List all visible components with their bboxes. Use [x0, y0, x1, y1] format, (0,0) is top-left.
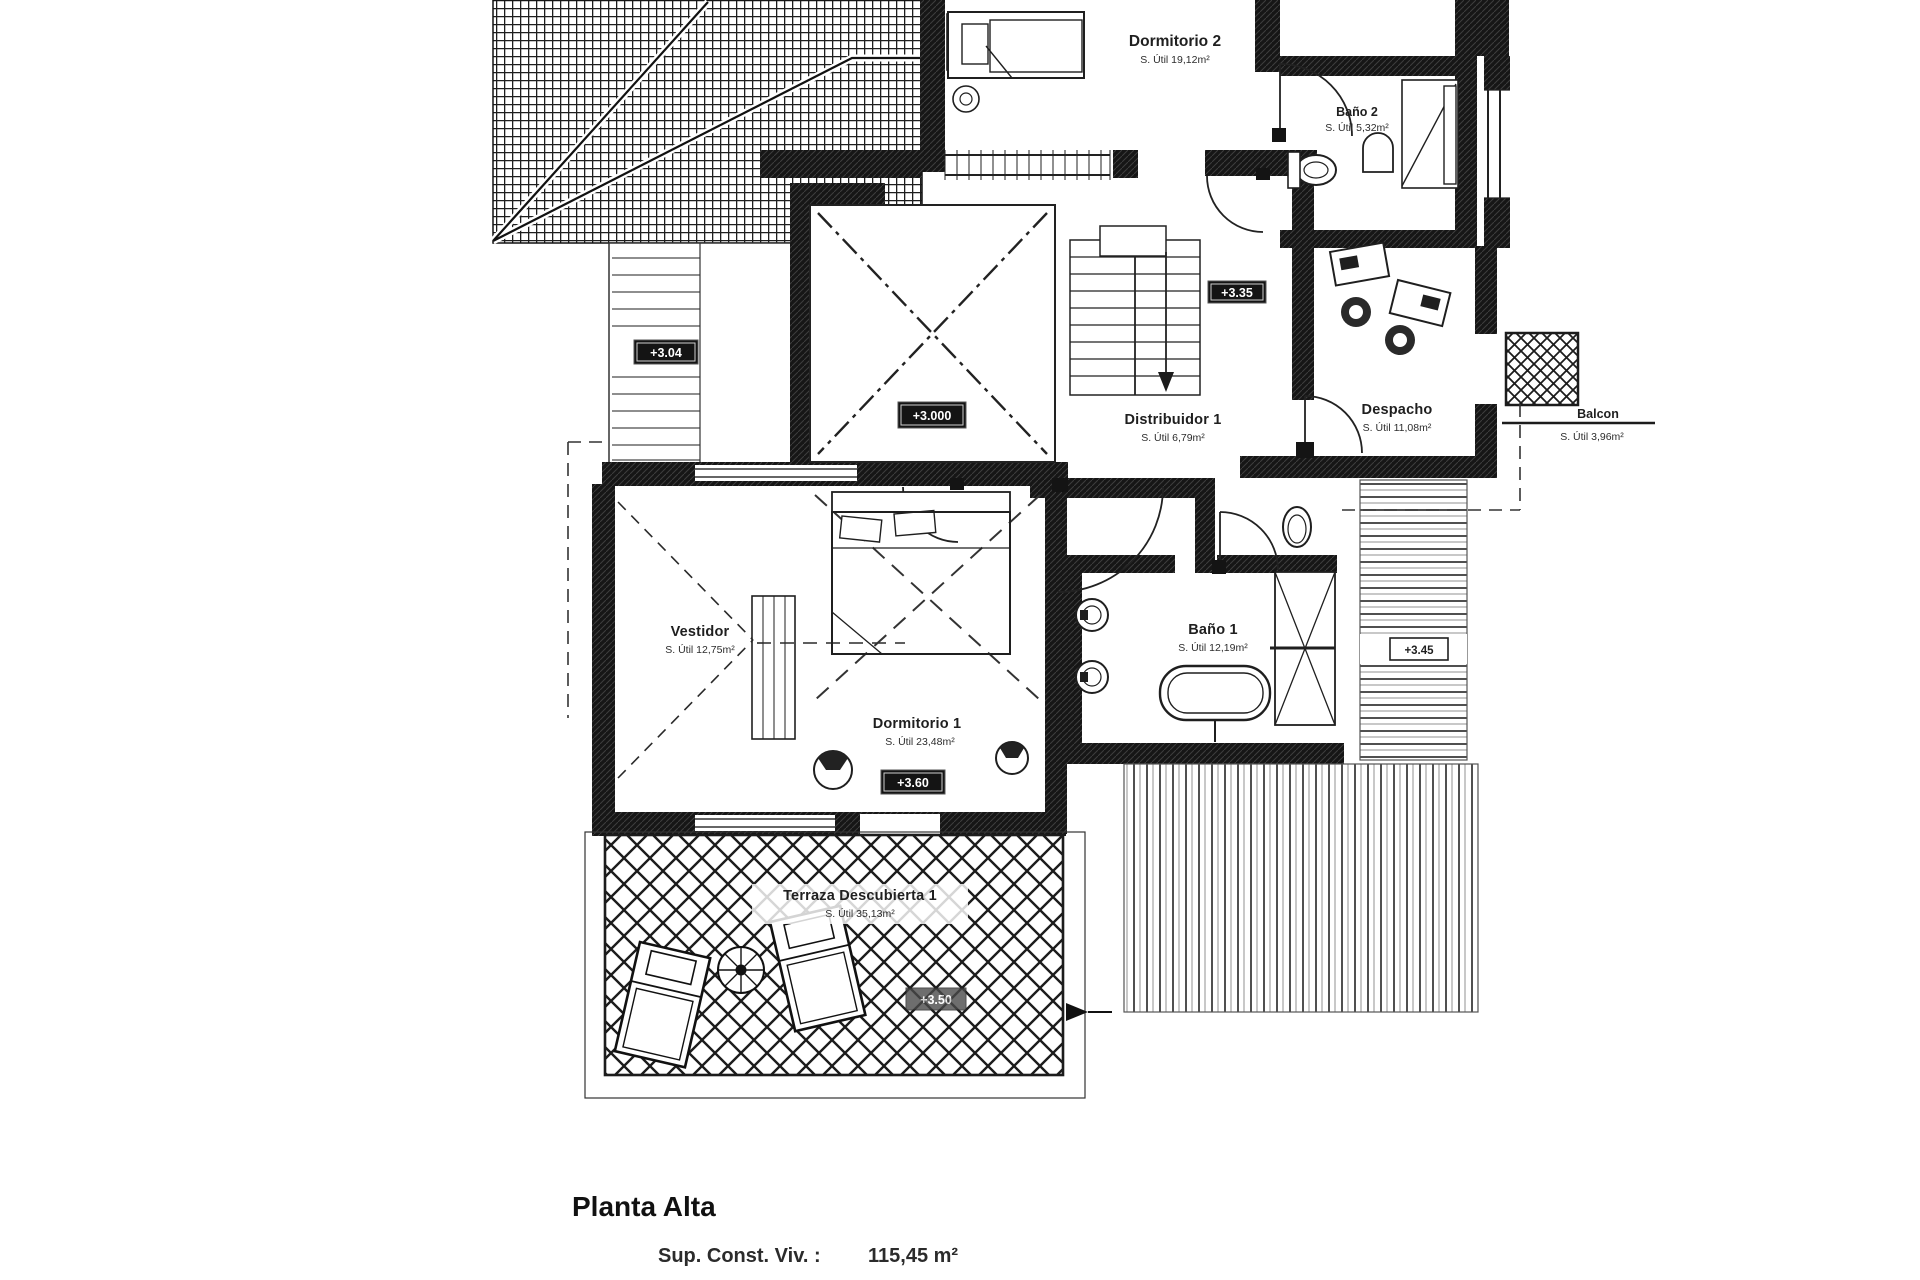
level-marker-6-text: +3.50: [920, 993, 952, 1007]
vestidor-fittings: [618, 502, 905, 778]
window-band-top: [945, 150, 1110, 180]
level-marker-3: +3.35: [1208, 281, 1266, 303]
label-bano2: Baño 2: [1336, 105, 1378, 119]
label-vestidor: Vestidor: [671, 624, 730, 640]
deck-lower-right: [1124, 764, 1478, 1012]
area-dormitorio2: S. Útil 19,12m²: [1140, 53, 1210, 66]
level-marker-2: +3.000: [898, 402, 966, 428]
label-bano1: Baño 1: [1188, 622, 1238, 638]
bano2-fixtures: [1288, 80, 1458, 188]
level-marker-6: +3.50: [906, 988, 966, 1010]
floor-plan-canvas: +3.04 +3.000 +3.35 +3.60 +3.45 +3.50 Dor…: [0, 0, 1920, 1280]
level-marker-1: +3.04: [634, 340, 698, 364]
area-vestidor: S. Útil 12,75m²: [665, 643, 735, 656]
label-distribuidor1: Distribuidor 1: [1124, 412, 1221, 428]
level-marker-3-text: +3.35: [1221, 286, 1253, 300]
level-marker-2-text: +3.000: [913, 409, 952, 423]
label-balcon: Balcon: [1577, 407, 1619, 421]
area-distribuidor1: S. Útil 6,79m²: [1141, 431, 1205, 444]
plan-title: Planta Alta: [572, 1191, 716, 1222]
level-marker-5: +3.45: [1390, 638, 1448, 660]
title-block: Planta Alta Sup. Const. Viv. : 115,45 m²: [572, 1191, 958, 1267]
label-terraza: Terraza Descubierta 1: [783, 888, 937, 904]
label-dormitorio1: Dormitorio 1: [873, 716, 962, 732]
area-bano1: S. Útil 12,19m²: [1178, 641, 1248, 654]
plan-area-label: Sup. Const. Viv. :: [658, 1245, 821, 1267]
terrace: [585, 832, 1112, 1098]
plan-area-value: 115,45 m²: [868, 1245, 958, 1267]
area-despacho: S. Útil 11,08m²: [1363, 421, 1432, 434]
level-marker-4-text: +3.60: [897, 776, 929, 790]
area-bano2: S. Útil 5,32m²: [1325, 121, 1389, 134]
staircase: [1070, 226, 1200, 395]
level-marker-1-text: +3.04: [650, 346, 682, 360]
label-despacho: Despacho: [1362, 402, 1433, 418]
area-terraza: S. Útil 35,13m²: [825, 907, 895, 920]
deck-right-panel: [1360, 480, 1467, 760]
despacho-furniture: [1330, 243, 1450, 355]
area-dormitorio1: S. Útil 23,48m²: [885, 735, 955, 748]
window-right: [1484, 90, 1510, 198]
level-marker-5-text: +3.45: [1404, 645, 1434, 657]
floor-plan-page: +3.04 +3.000 +3.35 +3.60 +3.45 +3.50 Dor…: [0, 0, 1920, 1280]
bed-dormitorio-2: [947, 12, 1084, 112]
parasol-table: [718, 947, 764, 993]
label-dormitorio2: Dormitorio 2: [1129, 33, 1221, 50]
area-balcon: S. Útil 3,96m²: [1560, 430, 1624, 443]
level-marker-4: +3.60: [881, 770, 945, 794]
